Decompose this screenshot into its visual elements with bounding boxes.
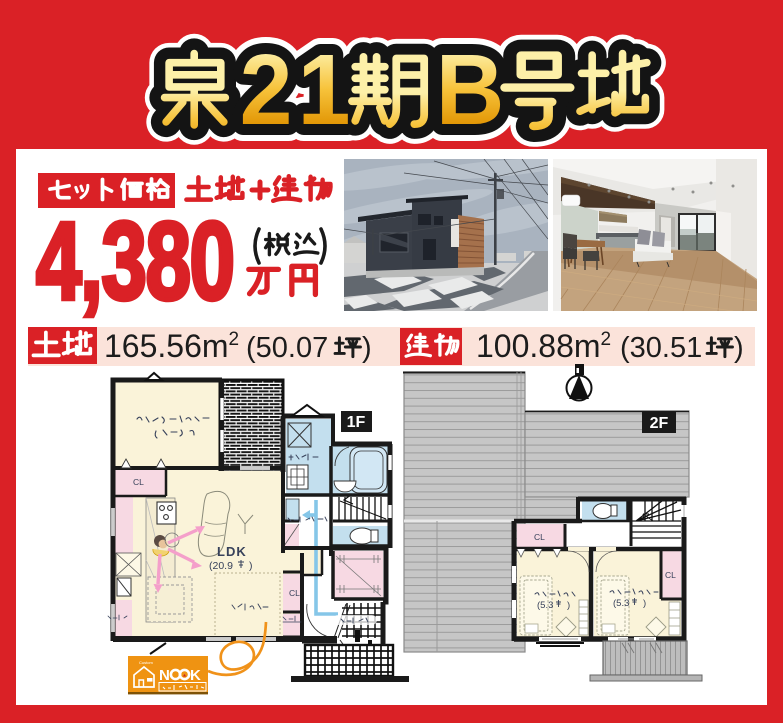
svg-text:Custom: Custom	[139, 660, 153, 665]
svg-text:1F: 1F	[347, 414, 366, 431]
svg-text:CL: CL	[665, 570, 676, 580]
svg-text:LDK: LDK	[217, 544, 247, 559]
svg-text:): )	[567, 600, 570, 611]
svg-text:CL: CL	[289, 588, 300, 598]
svg-text:): )	[643, 598, 646, 609]
svg-text:K: K	[190, 667, 201, 684]
svg-text:(5.3: (5.3	[613, 598, 629, 609]
svg-text:(5.3: (5.3	[537, 600, 553, 611]
svg-text:CL: CL	[534, 532, 545, 542]
svg-text:N: N	[159, 667, 170, 684]
svg-text:): )	[249, 560, 253, 572]
svg-text:2F: 2F	[650, 415, 669, 432]
svg-text:(20.9: (20.9	[209, 560, 233, 572]
svg-text:CL: CL	[133, 477, 144, 487]
